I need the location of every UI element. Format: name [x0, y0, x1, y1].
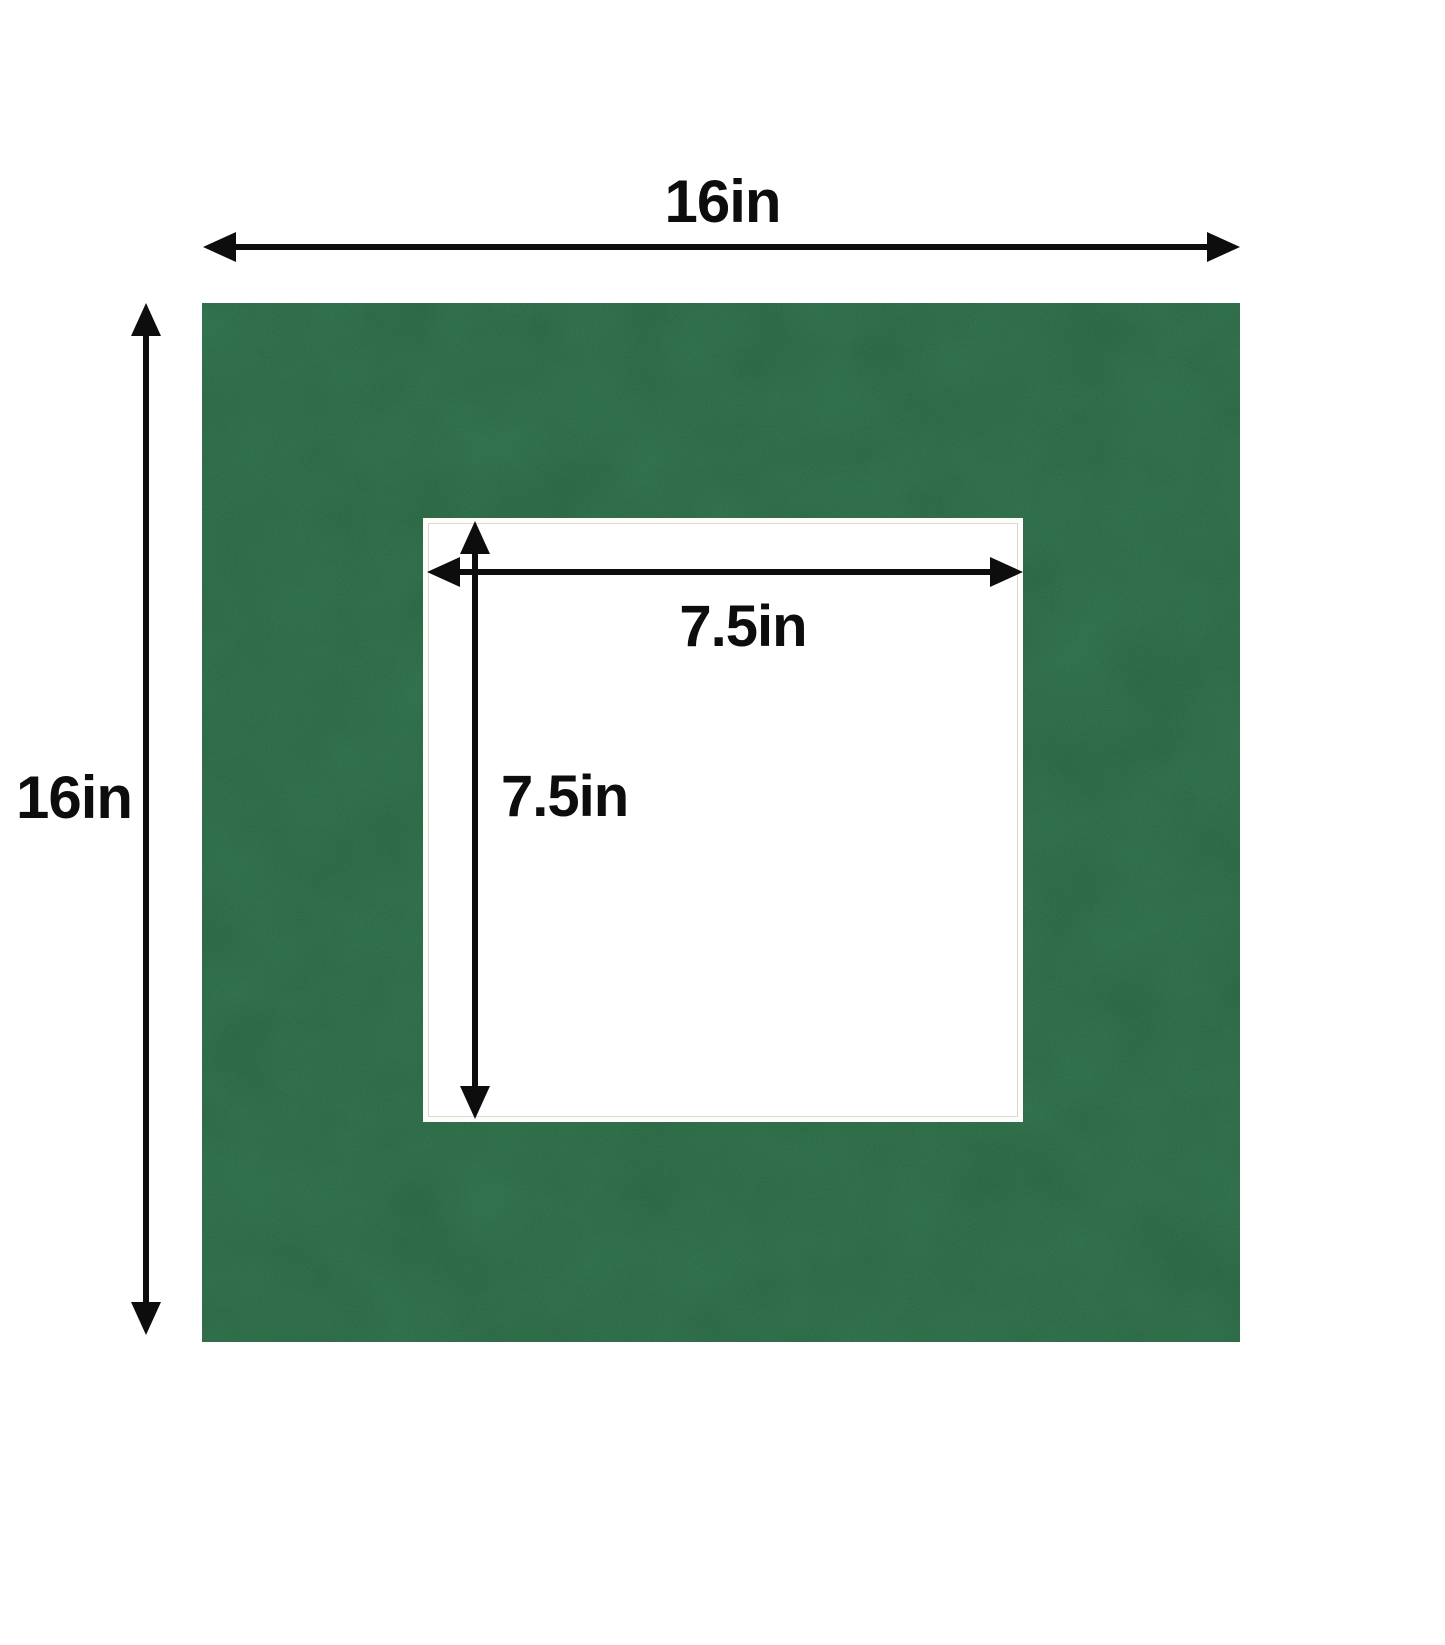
mat-width-arrow-icon — [203, 230, 1240, 264]
window-width-label: 7.5in — [578, 598, 908, 656]
window-width-arrow-icon — [427, 555, 1023, 589]
window-height-arrow-icon — [458, 521, 492, 1119]
dimension-diagram: 16in 16in — [0, 0, 1445, 1645]
mat-board — [202, 303, 1240, 1342]
mat-height-label: 16in — [0, 768, 148, 828]
mat-width-label: 16in — [205, 172, 1240, 232]
mat-height-arrow-icon — [129, 303, 163, 1335]
window-height-label: 7.5in — [501, 768, 628, 826]
